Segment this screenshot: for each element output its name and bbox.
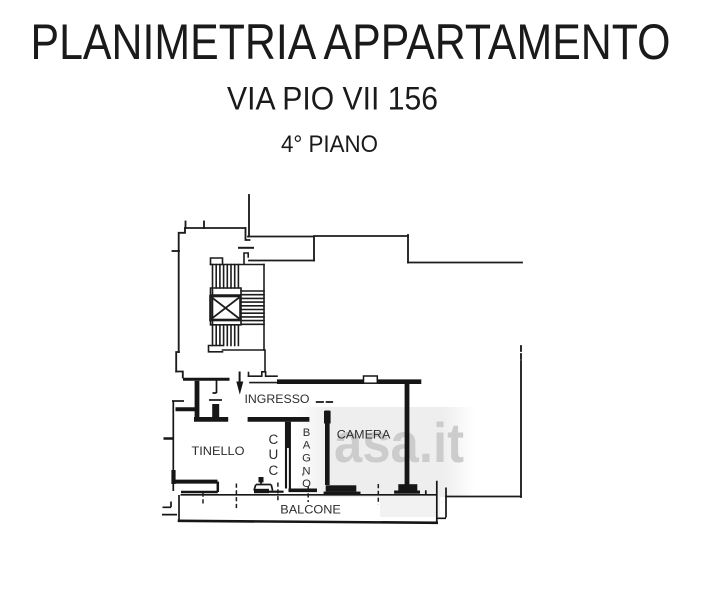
svg-text:INGRESSO: INGRESSO	[245, 392, 310, 406]
svg-text:C: C	[269, 432, 279, 447]
svg-text:': '	[302, 472, 304, 484]
svg-text:U: U	[269, 447, 279, 462]
svg-text:VIA PIO VII 156: VIA PIO VII 156	[227, 80, 438, 117]
svg-text:PLANIMETRIA APPARTAMENTO: PLANIMETRIA APPARTAMENTO	[31, 14, 671, 70]
svg-text:CAMERA: CAMERA	[337, 427, 391, 441]
svg-text:B: B	[303, 427, 311, 439]
svg-text:asa.it: asa.it	[334, 411, 464, 474]
svg-text:BALCONE: BALCONE	[280, 503, 341, 517]
svg-text:TINELLO: TINELLO	[192, 444, 245, 458]
svg-text:G: G	[302, 453, 311, 465]
svg-text:4° PIANO: 4° PIANO	[281, 131, 378, 158]
svg-text:C: C	[269, 463, 279, 478]
svg-text:A: A	[303, 440, 311, 452]
